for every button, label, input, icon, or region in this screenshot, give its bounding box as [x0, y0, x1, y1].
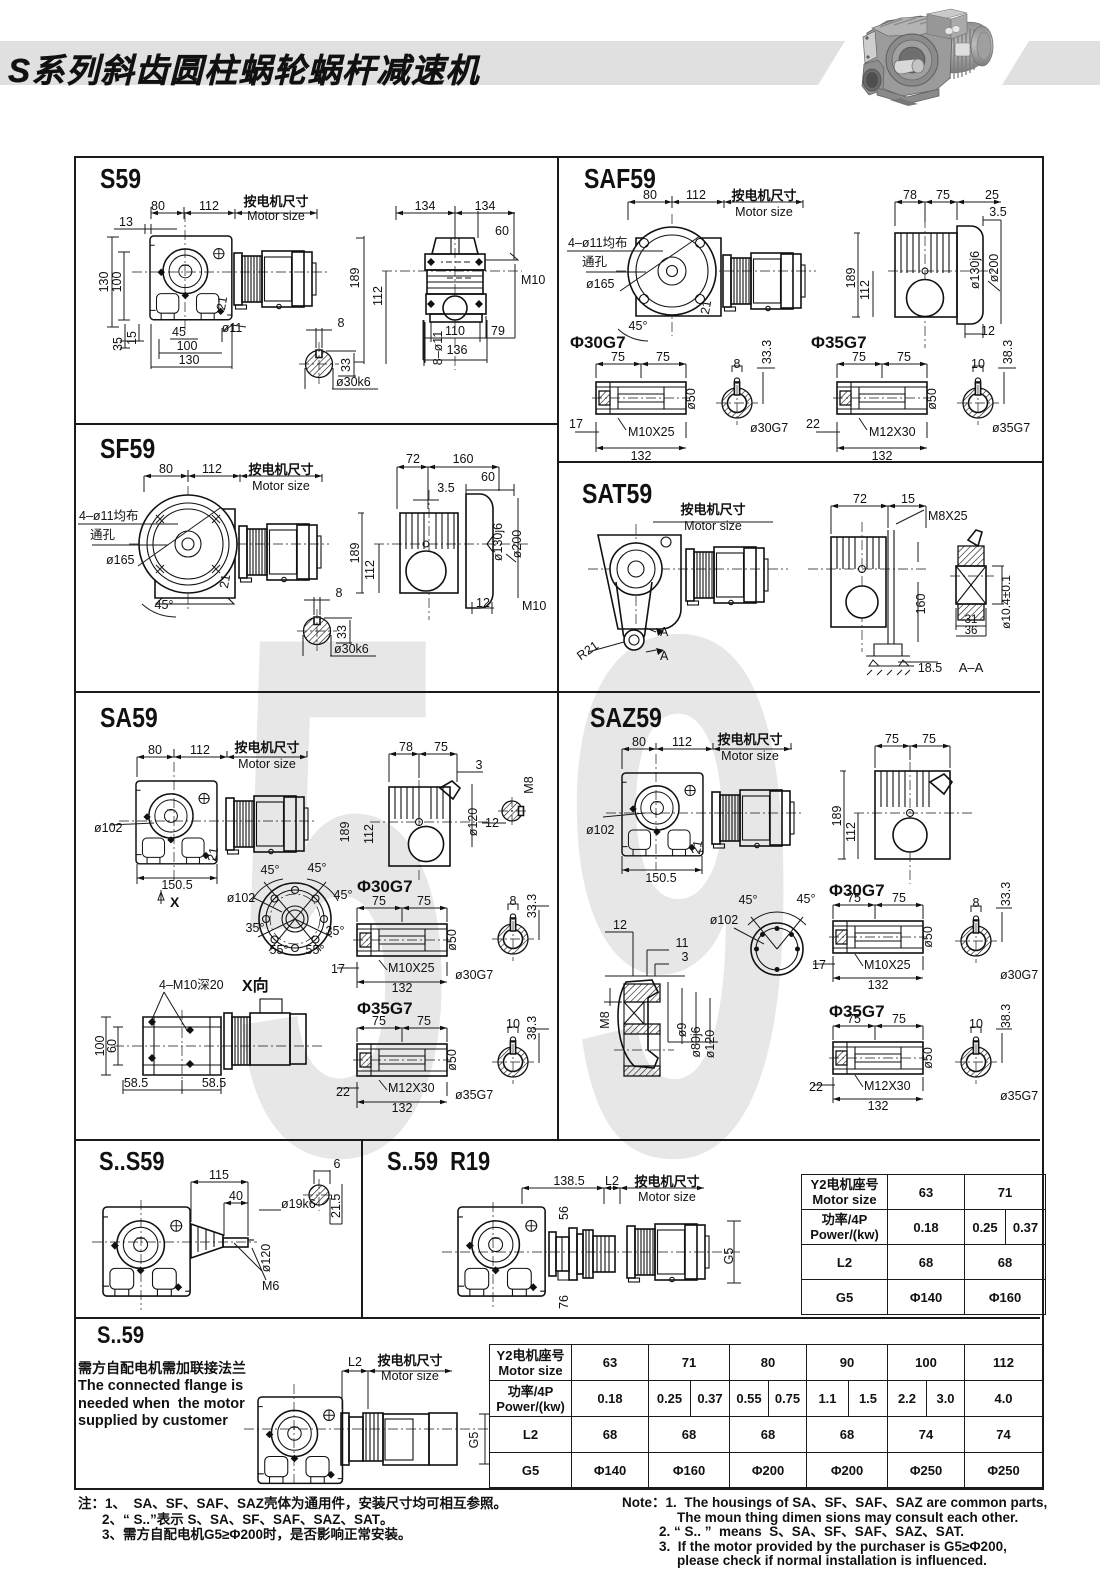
svg-text:33: 33	[339, 358, 353, 372]
svg-text:8: 8	[510, 894, 517, 908]
svg-text:33.3: 33.3	[525, 894, 539, 918]
svg-text:3: 3	[476, 758, 483, 772]
svg-text:35°: 35°	[246, 921, 265, 935]
svg-text:ø30G7: ø30G7	[1000, 968, 1038, 982]
svg-text:Motor size: Motor size	[721, 749, 779, 763]
svg-text:ø35G7: ø35G7	[455, 1088, 493, 1102]
svg-text:ø50: ø50	[921, 1047, 935, 1069]
svg-text:112: 112	[672, 735, 692, 749]
svg-text:按电机尺寸: 按电机尺寸	[234, 740, 299, 755]
svg-text:A: A	[660, 649, 669, 663]
svg-text:132: 132	[631, 449, 652, 462]
svg-text:75: 75	[885, 732, 899, 746]
svg-text:75: 75	[372, 894, 386, 908]
svg-text:58.5: 58.5	[202, 1076, 226, 1090]
svg-text:M10X25: M10X25	[864, 958, 911, 972]
svg-text:33.3: 33.3	[999, 882, 1013, 906]
svg-text:38.3: 38.3	[525, 1016, 539, 1040]
svg-text:M10: M10	[522, 599, 546, 613]
svg-text:按电机尺寸: 按电机尺寸	[634, 1174, 699, 1189]
svg-text:M8: M8	[522, 776, 536, 793]
svg-text:75: 75	[372, 1014, 386, 1028]
svg-text:38.3: 38.3	[999, 1004, 1013, 1028]
svg-text:Motor size: Motor size	[735, 205, 793, 219]
svg-text:3.5: 3.5	[437, 481, 454, 495]
svg-text:40: 40	[229, 1189, 243, 1203]
svg-text:ø102: ø102	[94, 821, 123, 835]
svg-text:ø30G7: ø30G7	[750, 421, 788, 435]
svg-text:M10X25: M10X25	[628, 425, 675, 439]
svg-text:通孔: 通孔	[90, 528, 116, 542]
svg-text:G5: G5	[722, 1248, 736, 1265]
svg-text:8: 8	[336, 586, 343, 600]
svg-text:17: 17	[812, 958, 826, 972]
svg-text:10: 10	[971, 357, 985, 371]
svg-text:ø130j6: ø130j6	[491, 523, 505, 561]
svg-text:ø102: ø102	[586, 823, 615, 837]
svg-text:ø120: ø120	[259, 1244, 273, 1273]
svg-text:M6: M6	[262, 1279, 279, 1293]
svg-text:ø50: ø50	[921, 926, 935, 948]
svg-text:36: 36	[965, 625, 978, 637]
svg-text:112: 112	[371, 286, 385, 306]
svg-text:8–ø11: 8–ø11	[431, 331, 445, 366]
svg-text:ø120: ø120	[466, 808, 480, 837]
svg-text:150.5: 150.5	[645, 871, 676, 885]
svg-text:M12X30: M12X30	[869, 425, 916, 439]
svg-text:M12X30: M12X30	[388, 1081, 435, 1095]
svg-text:45°: 45°	[334, 888, 353, 902]
svg-text:45°: 45°	[308, 861, 327, 875]
svg-text:25: 25	[985, 188, 999, 202]
svg-text:A–A: A–A	[959, 660, 984, 675]
svg-text:ø50: ø50	[445, 1049, 459, 1071]
svg-text:100: 100	[110, 272, 124, 293]
svg-text:110: 110	[445, 324, 465, 338]
svg-text:ø165: ø165	[586, 277, 615, 291]
svg-text:11: 11	[676, 936, 689, 950]
svg-text:按电机尺寸: 按电机尺寸	[243, 194, 308, 209]
svg-text:Motor size: Motor size	[247, 209, 305, 223]
svg-text:M10: M10	[521, 273, 545, 287]
svg-text:35: 35	[111, 337, 125, 351]
svg-text:17: 17	[331, 962, 345, 976]
svg-text:130: 130	[97, 272, 111, 293]
svg-text:76: 76	[557, 1295, 571, 1309]
svg-text:79: 79	[491, 324, 505, 338]
svg-text:ø80j6: ø80j6	[689, 1026, 703, 1057]
svg-text:75: 75	[611, 350, 625, 364]
svg-text:17: 17	[569, 417, 583, 431]
svg-text:160: 160	[453, 452, 474, 466]
svg-text:ø200: ø200	[987, 254, 1001, 283]
svg-text:75: 75	[847, 1012, 861, 1026]
svg-text:15: 15	[901, 492, 915, 506]
svg-text:12: 12	[476, 596, 490, 610]
svg-text:21.5: 21.5	[329, 1194, 343, 1218]
svg-text:112: 112	[858, 280, 872, 300]
svg-text:112: 112	[363, 560, 377, 580]
svg-text:3.5: 3.5	[989, 205, 1006, 219]
svg-text:4–ø11均布: 4–ø11均布	[568, 236, 628, 250]
svg-text:12: 12	[613, 918, 627, 932]
svg-text:112: 112	[199, 199, 219, 213]
svg-text:R21: R21	[574, 638, 601, 663]
svg-text:115: 115	[209, 1168, 229, 1182]
svg-text:ø50: ø50	[445, 929, 459, 951]
svg-text:6: 6	[334, 1157, 341, 1171]
svg-text:75: 75	[936, 188, 950, 202]
svg-text:8: 8	[734, 357, 741, 371]
svg-text:160: 160	[914, 594, 928, 615]
svg-text:136: 136	[447, 343, 468, 357]
svg-text:75: 75	[417, 894, 431, 908]
svg-text:ø200: ø200	[510, 530, 524, 559]
svg-text:M8X25: M8X25	[928, 509, 968, 523]
svg-text:112: 112	[190, 743, 210, 757]
svg-text:L2: L2	[348, 1355, 362, 1369]
svg-text:75: 75	[897, 350, 911, 364]
svg-text:45°: 45°	[629, 319, 648, 333]
svg-text:ø35G7: ø35G7	[1000, 1089, 1038, 1103]
svg-text:33.3: 33.3	[760, 340, 774, 364]
svg-text:12: 12	[981, 324, 995, 338]
svg-text:35°: 35°	[326, 924, 345, 938]
svg-text:75: 75	[892, 1012, 906, 1026]
svg-text:ø50: ø50	[684, 388, 698, 410]
svg-text:12: 12	[485, 816, 499, 830]
svg-text:ø11: ø11	[222, 321, 243, 335]
svg-text:M10X25: M10X25	[388, 961, 435, 975]
svg-text:72: 72	[853, 492, 867, 506]
svg-text:22: 22	[806, 417, 820, 431]
svg-text:Motor size: Motor size	[252, 479, 310, 493]
svg-text:75: 75	[852, 350, 866, 364]
svg-text:8: 8	[973, 896, 980, 910]
svg-text:X向: X向	[242, 976, 269, 995]
svg-text:M12X30: M12X30	[864, 1079, 911, 1093]
svg-text:112: 112	[686, 188, 706, 202]
svg-text:75: 75	[417, 1014, 431, 1028]
svg-text:4–M10深20: 4–M10深20	[159, 978, 224, 992]
svg-text:13: 13	[119, 215, 133, 229]
svg-text:ø30G7: ø30G7	[455, 968, 493, 982]
svg-text:ø30k6: ø30k6	[334, 642, 369, 656]
svg-text:80: 80	[148, 743, 162, 757]
svg-text:189: 189	[338, 822, 352, 843]
svg-text:3: 3	[682, 950, 689, 964]
svg-text:38.3: 38.3	[1001, 340, 1015, 364]
svg-text:189: 189	[348, 543, 362, 564]
svg-text:132: 132	[872, 449, 893, 462]
svg-text:18.5: 18.5	[918, 661, 942, 675]
svg-text:通孔: 通孔	[582, 255, 608, 269]
svg-text:80: 80	[159, 462, 173, 476]
svg-text:21: 21	[698, 299, 714, 315]
svg-text:58.5: 58.5	[124, 1076, 148, 1090]
svg-text:75: 75	[922, 732, 936, 746]
svg-text:55°: 55°	[306, 943, 325, 957]
svg-text:60: 60	[105, 1039, 119, 1053]
svg-text:75: 75	[656, 350, 670, 364]
svg-text:21: 21	[689, 839, 705, 855]
svg-text:60: 60	[481, 470, 495, 484]
svg-text:Motor size: Motor size	[238, 757, 296, 771]
svg-text:45°: 45°	[155, 598, 174, 612]
svg-text:100: 100	[177, 339, 198, 353]
svg-text:138.5: 138.5	[553, 1174, 584, 1188]
svg-text:按电机尺寸: 按电机尺寸	[731, 188, 796, 203]
svg-text:78: 78	[399, 740, 413, 754]
svg-text:ø102: ø102	[227, 891, 256, 905]
svg-text:60: 60	[495, 224, 509, 238]
svg-text:22: 22	[336, 1085, 350, 1099]
svg-text:ø10.4±0.1: ø10.4±0.1	[999, 575, 1013, 629]
svg-text:75: 75	[434, 740, 448, 754]
svg-text:21: 21	[217, 573, 233, 589]
svg-text:56: 56	[557, 1206, 571, 1220]
svg-text:21: 21	[214, 295, 230, 311]
svg-text:45°: 45°	[739, 893, 758, 907]
svg-text:22: 22	[809, 1080, 823, 1094]
svg-text:ø130j6: ø130j6	[968, 251, 982, 289]
svg-text:X: X	[170, 894, 180, 910]
svg-text:72: 72	[406, 452, 420, 466]
svg-text:75: 75	[892, 891, 906, 905]
svg-text:ø165: ø165	[106, 553, 135, 567]
svg-text:80: 80	[632, 735, 646, 749]
svg-text:按电机尺寸: 按电机尺寸	[248, 462, 313, 477]
svg-text:ø35G7: ø35G7	[992, 421, 1030, 435]
svg-text:132: 132	[392, 981, 413, 995]
svg-text:112: 112	[362, 824, 376, 844]
svg-text:134: 134	[475, 199, 496, 213]
svg-text:132: 132	[392, 1101, 413, 1115]
svg-text:55°: 55°	[270, 943, 289, 957]
svg-text:8: 8	[338, 316, 345, 330]
svg-text:150.5: 150.5	[161, 878, 192, 892]
svg-text:按电机尺寸: 按电机尺寸	[377, 1353, 442, 1368]
svg-text:Motor size: Motor size	[381, 1369, 439, 1383]
svg-text:4–ø11均布: 4–ø11均布	[79, 509, 139, 523]
svg-text:80: 80	[151, 199, 165, 213]
svg-text:189: 189	[348, 268, 362, 289]
svg-text:ø9: ø9	[675, 1023, 689, 1038]
svg-text:ø30k6: ø30k6	[336, 375, 371, 389]
svg-text:ø102: ø102	[710, 913, 739, 927]
svg-text:A: A	[660, 625, 669, 639]
svg-text:112: 112	[844, 822, 858, 842]
svg-text:15: 15	[125, 331, 139, 345]
svg-text:按电机尺寸: 按电机尺寸	[680, 502, 745, 517]
svg-text:10: 10	[506, 1017, 520, 1031]
svg-text:ø19k6: ø19k6	[281, 1197, 316, 1211]
svg-text:189: 189	[830, 806, 844, 827]
svg-text:33: 33	[335, 625, 349, 639]
svg-text:ø50: ø50	[925, 388, 939, 410]
svg-text:按电机尺寸: 按电机尺寸	[717, 732, 782, 747]
svg-text:L2: L2	[605, 1174, 619, 1188]
svg-text:132: 132	[868, 1099, 889, 1113]
svg-text:45°: 45°	[261, 863, 280, 877]
svg-text:10: 10	[969, 1017, 983, 1031]
svg-text:78: 78	[903, 188, 917, 202]
svg-text:G5: G5	[467, 1432, 481, 1449]
svg-text:112: 112	[202, 462, 222, 476]
svg-text:134: 134	[415, 199, 436, 213]
svg-text:132: 132	[868, 978, 889, 992]
svg-text:130: 130	[179, 353, 200, 367]
svg-text:45°: 45°	[797, 892, 816, 906]
svg-text:189: 189	[844, 268, 858, 289]
svg-text:75: 75	[847, 891, 861, 905]
svg-text:Motor size: Motor size	[638, 1190, 696, 1204]
svg-text:ø120: ø120	[703, 1030, 717, 1059]
svg-text:45: 45	[172, 325, 186, 339]
svg-text:M8: M8	[598, 1011, 612, 1028]
svg-text:21: 21	[205, 846, 221, 862]
svg-text:Motor size: Motor size	[684, 519, 742, 533]
